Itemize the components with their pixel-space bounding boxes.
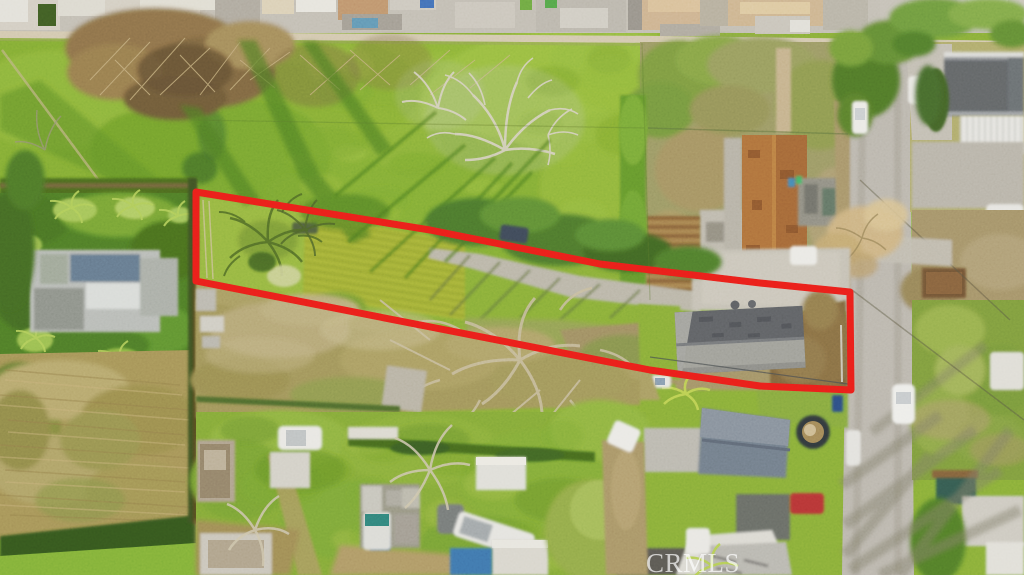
svg-text:CRMLS: CRMLS [646,548,740,575]
